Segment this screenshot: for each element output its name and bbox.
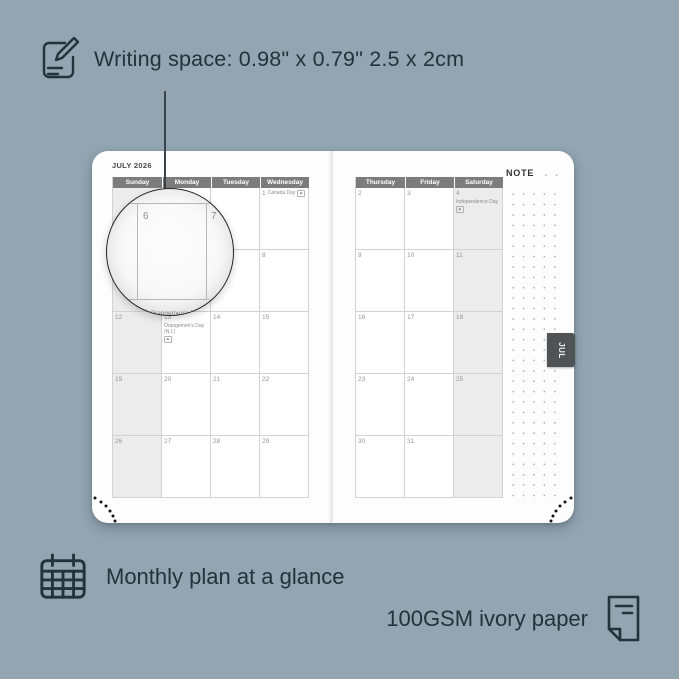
magnified-date: 7 [211,211,217,222]
date-number: 14 [213,314,220,322]
day-header-monday: Monday [162,177,211,188]
date-number: 25 [456,376,463,384]
calendar-cell: 22 [260,374,309,436]
holiday-label: Canada Day [268,190,296,198]
day-header-thursday: Thursday [356,177,405,188]
calendar-cell: 11 [454,250,503,312]
calendar-cell: 3 [405,188,454,250]
date-number: 19 [115,376,122,384]
calendar-grid-icon [38,552,88,602]
stitch-marks-right [540,493,574,527]
date-number: 20 [164,376,171,384]
date-number: 29 [262,438,269,446]
calendar-cell: 20 [162,374,211,436]
calendar-cell: 30 [356,436,405,498]
date-number: 28 [213,438,220,446]
date-number: 4 [456,190,460,198]
date-number: 24 [407,376,414,384]
magnified-gridline [107,299,233,300]
month-title: JULY 2026 [112,161,152,170]
monthly-plan-annotation: Monthly plan at a glance [38,552,345,602]
calendar-cell: 23 [356,374,405,436]
calendar-cell: 2 [356,188,405,250]
calendar-cell: 25 [454,374,503,436]
date-number: 22 [262,376,269,384]
date-number: 2 [358,190,362,198]
date-number: 9 [358,252,362,260]
planner-product-image: Writing space: 0.98" x 0.79" 2.5 x 2cm J… [0,0,679,679]
flag-icon: ⚑ [164,336,172,343]
note-label: NOTE [506,168,534,178]
flag-icon: ⚑ [456,206,464,213]
flag-icon: ⚑ [297,190,305,197]
note-dot-strip [538,166,564,177]
date-number: 8 [262,252,266,260]
day-header-friday: Friday [405,177,454,188]
calendar-cell: 14 [211,312,260,374]
calendar-cell: 1Canada Day⚑ [260,188,309,250]
calendar-cell: 16 [356,312,405,374]
calendar-cell [454,436,503,498]
calendar-cell: 18 [454,312,503,374]
calendar-cell: 27 [162,436,211,498]
month-tab: JUL [547,333,575,367]
date-number: 18 [456,314,463,322]
date-number: 23 [358,376,365,384]
day-header-wednesday: Wednesday [260,177,309,188]
date-number: 11 [456,252,463,260]
calendar-cell: 24 [405,374,454,436]
stitch-marks-left [92,493,126,527]
calendar-cell: 28 [211,436,260,498]
date-number: 26 [115,438,122,446]
date-number: 31 [407,438,414,446]
magnifier-leader-line [164,91,166,191]
paper-sheet-icon [604,594,642,644]
date-number: 12 [115,314,122,322]
date-number: 1 [262,190,266,198]
magnified-holiday: 13Orangemen's Day (N.I.) [107,301,233,316]
pencil-note-icon [38,36,80,82]
day-header-sunday: Sunday [113,177,162,188]
date-number: 30 [358,438,365,446]
calendar-cell: 21 [211,374,260,436]
calendar-cell: 8 [260,250,309,312]
magnifier-circle: 6 7 13Orangemen's Day (N.I.) [106,188,234,316]
paper-quality-text: 100GSM ivory paper [386,606,588,632]
day-header-saturday: Saturday [454,177,503,188]
magnified-gridline [107,203,233,204]
date-number: 10 [407,252,414,260]
day-header-tuesday: Tuesday [211,177,260,188]
calendar-cell: 10 [405,250,454,312]
magnified-gridline [137,203,138,299]
writing-space-text: Writing space: 0.98" x 0.79" 2.5 x 2cm [94,47,464,72]
date-number: 3 [407,190,411,198]
calendar-cell: 29 [260,436,309,498]
date-number: 21 [213,376,220,384]
date-number: 17 [407,314,414,322]
magnified-date: 6 [143,211,149,222]
date-number: 16 [358,314,365,322]
writing-space-annotation: Writing space: 0.98" x 0.79" 2.5 x 2cm [38,36,464,82]
paper-quality-annotation: 100GSM ivory paper [386,594,642,644]
calendar-cell: 19 [113,374,162,436]
month-tab-label: JUL [557,342,566,359]
calendar-cell: 9 [356,250,405,312]
calendar-cell: 4Independence Day⚑ [454,188,503,250]
notebook-spine [329,151,334,523]
monthly-plan-text: Monthly plan at a glance [106,564,345,590]
calendar-cell: 31 [405,436,454,498]
calendar-cell: 17 [405,312,454,374]
holiday-label: Independence Day [456,199,498,205]
holiday-label: Orangemen's Day (N.I.) [164,323,208,336]
date-number: 27 [164,438,171,446]
calendar-cell: 15 [260,312,309,374]
calendar-cell: 26 [113,436,162,498]
date-number: 15 [262,314,269,322]
calendar-cell: 12 [113,312,162,374]
calendar-cell: 13Orangemen's Day (N.I.)⚑ [162,312,211,374]
calendar-right-page: ThursdayFridaySaturday234Independence Da… [355,177,504,498]
magnified-gridline [206,203,207,299]
